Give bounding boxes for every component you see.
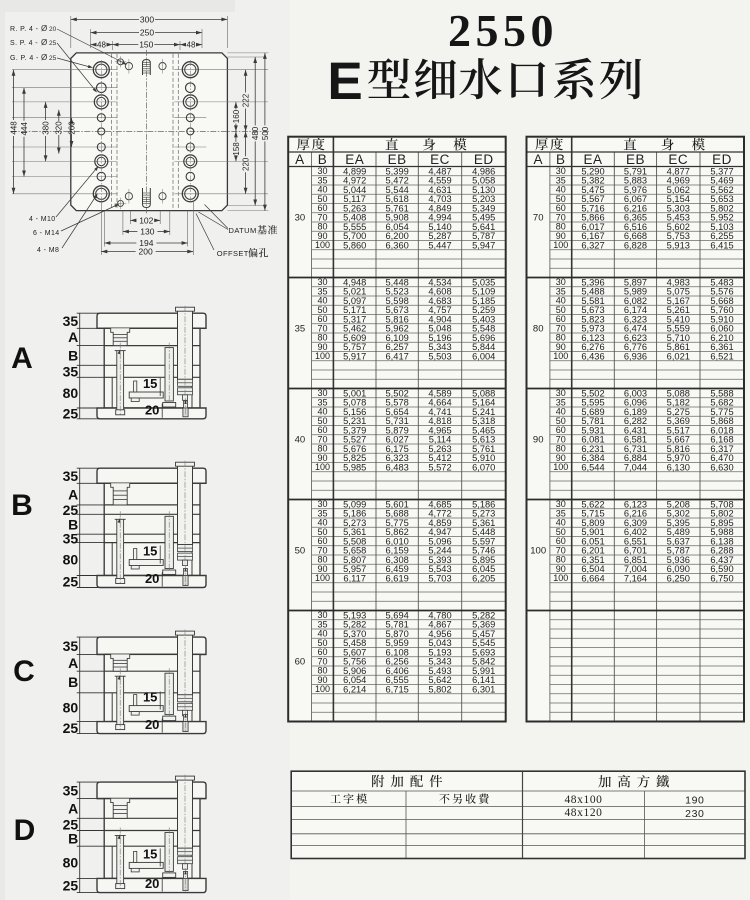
svg-text:35: 35 [63, 468, 79, 484]
svg-text:B: B [68, 831, 78, 847]
svg-text:100: 100 [553, 462, 568, 472]
svg-text:C: C [13, 655, 35, 688]
svg-text:2550: 2550 [448, 5, 558, 56]
svg-text:40: 40 [295, 434, 306, 445]
svg-text:EA: EA [583, 152, 602, 167]
svg-text:A: A [68, 486, 78, 502]
svg-text:B: B [68, 348, 78, 364]
svg-text:5,917: 5,917 [343, 351, 366, 361]
svg-text:Ø: Ø [41, 24, 47, 33]
svg-text:7,164: 7,164 [624, 573, 647, 583]
svg-text:20: 20 [145, 571, 159, 586]
svg-text:200: 200 [139, 246, 153, 256]
svg-text:100: 100 [315, 462, 330, 472]
svg-text:6,250: 6,250 [667, 573, 690, 583]
svg-text:6,936: 6,936 [624, 351, 647, 361]
svg-text:EB: EB [626, 152, 645, 167]
svg-text:7,044: 7,044 [624, 462, 647, 472]
svg-text:35: 35 [63, 783, 79, 799]
svg-text:A: A [295, 152, 305, 167]
svg-text:EB: EB [388, 152, 407, 167]
svg-text:A: A [68, 801, 78, 817]
svg-text:OFFSET: OFFSET [217, 249, 249, 258]
svg-text:6,436: 6,436 [581, 351, 604, 361]
svg-text:20: 20 [145, 717, 159, 732]
svg-text:6,130: 6,130 [667, 462, 690, 472]
svg-text:5,860: 5,860 [343, 240, 366, 250]
svg-text:15: 15 [143, 544, 157, 559]
svg-text:150: 150 [139, 40, 153, 50]
svg-text:EC: EC [668, 152, 688, 167]
svg-text:48: 48 [97, 41, 106, 50]
svg-text:130: 130 [140, 226, 154, 236]
svg-text:5,703: 5,703 [428, 573, 451, 583]
svg-text:300: 300 [140, 14, 154, 24]
svg-text:100: 100 [315, 240, 330, 250]
svg-text:190: 190 [685, 795, 704, 807]
svg-text:E: E [327, 52, 362, 111]
svg-text:480: 480 [251, 126, 260, 140]
svg-text:48x100: 48x100 [564, 794, 602, 806]
svg-text:B: B [318, 152, 328, 167]
svg-text:158: 158 [232, 142, 241, 156]
svg-text:20: 20 [145, 876, 159, 891]
svg-text:230: 230 [685, 808, 704, 820]
svg-text:50: 50 [295, 545, 306, 556]
svg-text:6,205: 6,205 [472, 573, 495, 583]
svg-text:25: 25 [63, 574, 79, 590]
svg-text:35: 35 [63, 531, 79, 547]
svg-text:90: 90 [533, 434, 544, 445]
svg-text:320: 320 [55, 121, 64, 135]
svg-text:100: 100 [553, 351, 568, 361]
svg-text:6,828: 6,828 [624, 240, 647, 250]
svg-text:5,913: 5,913 [667, 240, 690, 250]
svg-text:5,947: 5,947 [472, 240, 495, 250]
svg-text:6,117: 6,117 [343, 573, 366, 583]
svg-text:5,985: 5,985 [343, 462, 366, 472]
svg-text:220: 220 [242, 157, 251, 171]
svg-text:6,070: 6,070 [472, 462, 495, 472]
svg-text:448: 448 [9, 121, 18, 135]
svg-text:20: 20 [145, 402, 159, 417]
svg-text:25: 25 [49, 40, 57, 47]
svg-text:R. P. 4 -: R. P. 4 - [10, 26, 39, 33]
svg-text:15: 15 [143, 376, 157, 391]
svg-text:25: 25 [49, 55, 57, 62]
svg-text:100: 100 [553, 573, 568, 583]
svg-text:6,004: 6,004 [472, 351, 495, 361]
svg-text:48: 48 [187, 41, 196, 50]
svg-text:B: B [68, 674, 78, 690]
svg-text:4 - M8: 4 - M8 [37, 247, 59, 254]
svg-text:260: 260 [67, 121, 76, 135]
svg-text:25: 25 [63, 878, 79, 894]
svg-text:48x120: 48x120 [564, 807, 602, 819]
svg-text:6,715: 6,715 [386, 684, 409, 694]
svg-text:6,630: 6,630 [710, 462, 733, 472]
svg-text:100: 100 [553, 240, 568, 250]
svg-text:100: 100 [530, 545, 546, 556]
svg-text:B: B [556, 152, 566, 167]
svg-text:B: B [11, 489, 33, 522]
svg-text:222: 222 [242, 93, 251, 107]
svg-text:A: A [533, 152, 543, 167]
svg-text:5,503: 5,503 [428, 351, 451, 361]
svg-text:A: A [11, 342, 33, 375]
svg-text:6,415: 6,415 [710, 240, 733, 250]
svg-text:A: A [68, 655, 78, 671]
svg-text:DATUM: DATUM [229, 226, 257, 235]
svg-text:380: 380 [42, 121, 51, 135]
svg-text:100: 100 [315, 573, 330, 583]
svg-text:35: 35 [63, 364, 79, 380]
svg-text:100: 100 [315, 684, 330, 694]
svg-text:35: 35 [295, 323, 306, 334]
svg-text:250: 250 [140, 28, 154, 38]
svg-text:6,664: 6,664 [581, 573, 604, 583]
svg-text:35: 35 [63, 638, 79, 654]
svg-text:6,417: 6,417 [386, 351, 409, 361]
svg-text:Ø: Ø [41, 38, 47, 47]
svg-text:5,447: 5,447 [428, 240, 451, 250]
svg-text:ED: ED [474, 152, 494, 167]
svg-text:A: A [68, 329, 78, 345]
svg-text:6,360: 6,360 [386, 240, 409, 250]
svg-text:6,301: 6,301 [472, 684, 495, 694]
svg-text:500: 500 [261, 126, 270, 140]
svg-text:80: 80 [533, 323, 544, 334]
svg-text:EC: EC [430, 152, 450, 167]
svg-text:6,521: 6,521 [710, 351, 733, 361]
svg-text:S. P. 4 -: S. P. 4 - [10, 40, 38, 47]
svg-text:100: 100 [315, 351, 330, 361]
svg-text:6 - M14: 6 - M14 [33, 230, 60, 237]
svg-text:G. P. 4 -: G. P. 4 - [10, 55, 39, 62]
svg-text:6,483: 6,483 [386, 462, 409, 472]
svg-text:5,572: 5,572 [428, 462, 451, 472]
svg-text:102: 102 [139, 215, 153, 225]
svg-text:EA: EA [345, 152, 364, 167]
svg-text:80: 80 [63, 385, 79, 401]
svg-text:25: 25 [63, 720, 79, 736]
svg-text:20: 20 [49, 26, 57, 33]
svg-text:30: 30 [295, 212, 306, 223]
svg-text:5,802: 5,802 [428, 684, 451, 694]
svg-text:60: 60 [295, 656, 306, 667]
svg-text:444: 444 [20, 122, 29, 136]
svg-text:6,619: 6,619 [386, 573, 409, 583]
svg-text:ED: ED [712, 152, 732, 167]
svg-text:Ø: Ø [41, 53, 47, 62]
svg-text:6,544: 6,544 [581, 462, 604, 472]
svg-text:D: D [14, 814, 36, 847]
svg-text:25: 25 [63, 406, 79, 422]
svg-text:80: 80 [63, 855, 79, 871]
svg-text:15: 15 [143, 690, 157, 705]
svg-text:80: 80 [63, 551, 79, 567]
svg-text:6,750: 6,750 [710, 573, 733, 583]
svg-text:6,021: 6,021 [667, 351, 690, 361]
svg-text:160: 160 [232, 109, 241, 123]
svg-text:25: 25 [63, 502, 79, 518]
svg-text:4 - M10: 4 - M10 [29, 216, 56, 223]
svg-text:80: 80 [63, 699, 79, 715]
svg-text:70: 70 [533, 212, 544, 223]
svg-text:6,214: 6,214 [343, 684, 366, 694]
svg-text:15: 15 [143, 846, 157, 861]
svg-text:6,327: 6,327 [581, 240, 604, 250]
svg-text:35: 35 [63, 313, 79, 329]
